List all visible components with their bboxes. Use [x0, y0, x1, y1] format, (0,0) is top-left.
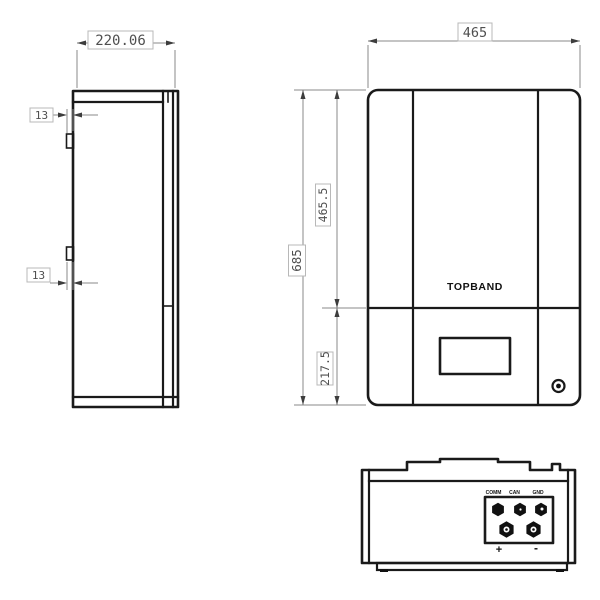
- arrowhead-right: [166, 41, 175, 46]
- power-terminal-negative-pin: [532, 528, 535, 531]
- dimension-front-height: 685: [289, 90, 306, 405]
- terminal-hex-2-center: [519, 508, 521, 510]
- front-lower-dim-label: 217.5: [318, 351, 332, 386]
- arrowhead-down: [335, 396, 340, 405]
- front-height-dim-label: 685: [289, 249, 304, 272]
- terminal-hex-3-center: [541, 508, 544, 511]
- base-strip: [377, 563, 567, 570]
- arrowhead-down: [301, 396, 306, 405]
- polarity-positive-mark: +: [496, 544, 502, 556]
- side-depth-dim-label: 220.06: [95, 33, 146, 49]
- power-terminal-positive-pin: [505, 528, 508, 531]
- dimension-side-depth: 220.06: [77, 31, 175, 88]
- arrowhead-right: [58, 113, 67, 118]
- drawing-svg: 220.06 13 13 TOPBAN: [0, 0, 600, 600]
- arrowhead-left: [77, 41, 86, 46]
- terminal-label-gnd: GND: [532, 490, 544, 496]
- dimension-front-upper-section: 465.5: [316, 90, 340, 308]
- front-width-dim-label: 465: [463, 25, 487, 41]
- brand-logo: TOPBAND: [447, 281, 503, 293]
- arrowhead-down: [335, 299, 340, 308]
- terminal-label-comm: COMM: [486, 490, 502, 496]
- arrowhead-up: [301, 90, 306, 99]
- front-upper-dim-label: 465.5: [316, 188, 330, 223]
- arrowhead-up: [335, 90, 340, 99]
- dimension-hook-offset-bottom: 13: [27, 262, 98, 290]
- arrowhead-left: [368, 39, 377, 44]
- technical-drawing-canvas: 220.06 13 13 TOPBAN: [0, 0, 600, 600]
- power-button-dot: [556, 384, 561, 389]
- terminal-block: COMM CAN GND + -: [485, 490, 553, 556]
- terminal-label-can: CAN: [509, 490, 520, 496]
- arrowhead-right: [571, 39, 580, 44]
- arrowhead-right: [58, 281, 67, 286]
- dimension-front-width: 465: [368, 23, 580, 88]
- arrowhead-left: [73, 113, 82, 118]
- arrowhead-left: [73, 281, 82, 286]
- front-view: TOPBAND 465 685: [289, 23, 581, 405]
- front-body-outline: [368, 90, 580, 405]
- side-view: 220.06 13 13: [27, 31, 178, 407]
- dimension-front-lower-section: 217.5: [317, 308, 340, 405]
- foot-right: [556, 569, 564, 572]
- bottom-view: COMM CAN GND + -: [362, 459, 575, 572]
- hook-offset-top-label: 13: [35, 109, 48, 122]
- display-window: [440, 338, 510, 374]
- dimension-hook-offset-top: 13: [30, 108, 98, 133]
- polarity-negative-mark: -: [534, 541, 538, 555]
- foot-left: [380, 569, 388, 572]
- arrowhead-up: [335, 308, 340, 317]
- hook-offset-bottom-label: 13: [32, 269, 45, 282]
- terminal-hex-1: [492, 503, 504, 517]
